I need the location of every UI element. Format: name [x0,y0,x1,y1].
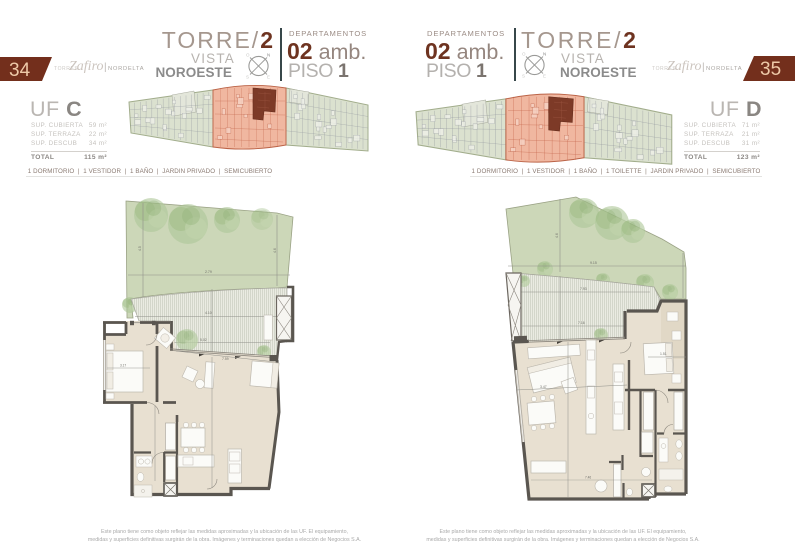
svg-text:4.5: 4.5 [138,246,142,251]
svg-text:4.6: 4.6 [555,233,559,238]
svg-text:7.93: 7.93 [580,287,587,291]
svg-text:4.6: 4.6 [273,248,277,253]
svg-text:2.79: 2.79 [205,270,212,274]
svg-text:7.46: 7.46 [585,476,591,480]
svg-text:1.51: 1.51 [660,352,667,356]
svg-text:3.47: 3.47 [540,385,547,389]
svg-text:5.02: 5.02 [200,338,207,342]
svg-text:9.15: 9.15 [590,261,597,265]
svg-text:7.59: 7.59 [222,357,229,361]
svg-text:7.16: 7.16 [578,321,585,325]
svg-text:3.17: 3.17 [120,364,126,368]
svg-text:4.10: 4.10 [205,311,212,315]
